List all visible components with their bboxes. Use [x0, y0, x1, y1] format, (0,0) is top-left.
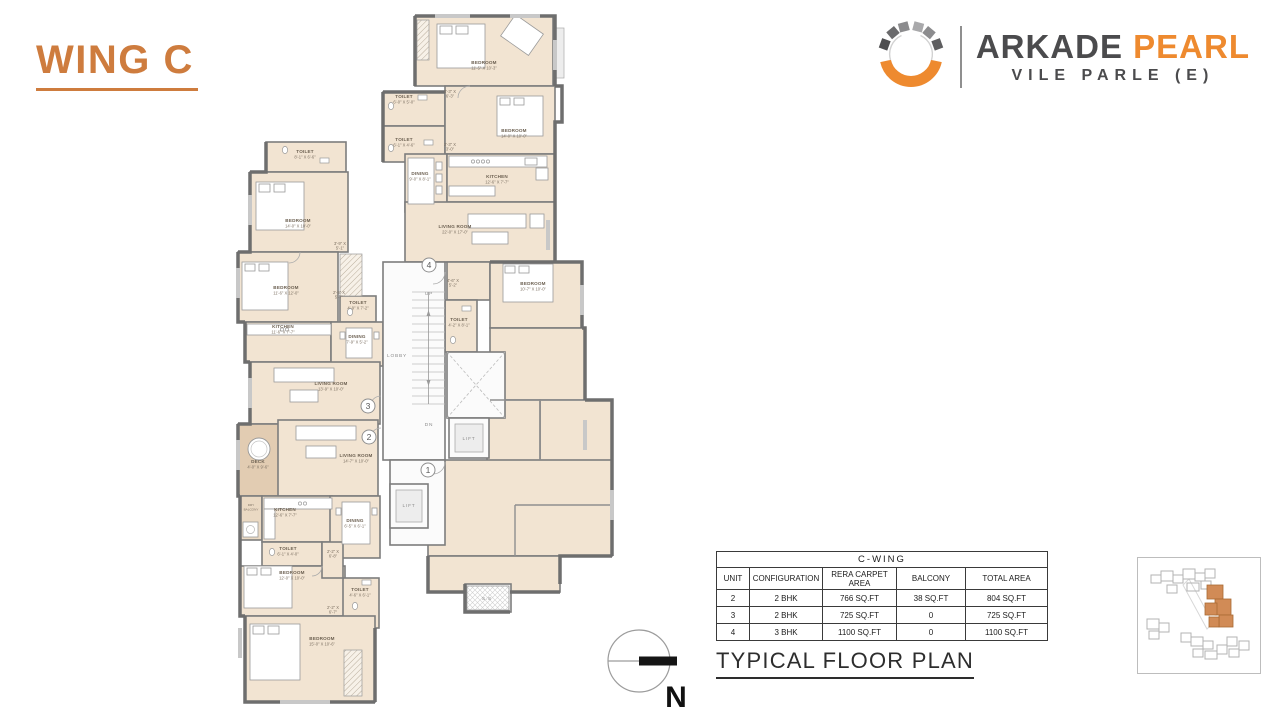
room-label: BEDROOM14'-0" X 10'-0" — [285, 218, 311, 228]
room-label: TOILET4'-2" X 8'-1" — [448, 317, 470, 327]
unit-marker: 2 — [362, 430, 376, 444]
room-label: LIVING ROOM14'-7" X 10'-0" — [339, 453, 372, 463]
room-label: BEDROOM15'-0" X 10'-6" — [309, 636, 335, 646]
room-label: TOILET6'-0" X 5'-0" — [393, 94, 415, 104]
table-row: 43 BHK 1100 SQ.FT0 1100 SQ.FT — [717, 624, 1048, 641]
svg-text:1: 1 — [426, 465, 431, 475]
room-label: KITCHEN12'-6" X 7'-7" — [273, 507, 297, 517]
svg-text:2: 2 — [367, 432, 372, 442]
col-header: TOTAL AREA — [966, 568, 1048, 590]
room-label: TOILET6'-1" X 4'-0" — [277, 546, 299, 556]
core-label: DN — [425, 422, 434, 428]
col-header: UNIT — [717, 568, 750, 590]
core-label: LIFT — [402, 503, 415, 509]
unit-marker: 4 — [422, 258, 436, 272]
room — [540, 400, 612, 462]
unit-marker: 1 — [421, 463, 435, 477]
wardrobe — [417, 20, 429, 60]
room-label: TOILET4'-9" X 7'-2" — [347, 300, 369, 310]
north-compass: N — [608, 630, 687, 714]
col-header: CONFIGURATION — [750, 568, 823, 590]
key-plan — [1137, 557, 1261, 674]
room-label: TOILET6'-1" X 4'-6" — [393, 137, 415, 147]
room-label: KITCHEN11'-6" X 7'-7" — [271, 324, 295, 334]
room-label: BEDROOM11'-5" X 10'-3" — [471, 60, 497, 70]
col-header: RERA CARPET AREA — [823, 568, 897, 590]
svg-text:4: 4 — [427, 260, 432, 270]
room-label: BEDROOM14'-0" X 10'-0" — [501, 128, 527, 138]
cwing-area-table: C-WING UNIT CONFIGURATION RERA CARPET AR… — [716, 551, 1048, 641]
room-label: BEDROOM10'-7" X 10'-0" — [520, 281, 546, 291]
wardrobe — [344, 650, 362, 696]
floor-plan: BEDROOM11'-5" X 10'-3"3'-3" X6'-3"TOILET… — [0, 0, 1280, 720]
room-label: LIVING ROOM13'-9" X 10'-0" — [314, 381, 347, 391]
table-row: 32 BHK 725 SQ.FT0 725 SQ.FT — [717, 607, 1048, 624]
room-label: KITCHEN12'-6" X 7'-7" — [485, 174, 509, 184]
north-label: N — [665, 681, 687, 714]
core-label: LOBBY — [387, 353, 407, 359]
col-header: BALCONY — [897, 568, 966, 590]
sheet-caption: TYPICAL FLOOR PLAN — [716, 648, 974, 679]
room-label: TOILET4'-6" X 6'-1" — [349, 587, 371, 597]
unit-marker: 3 — [361, 399, 375, 413]
rooms-layer — [238, 16, 612, 702]
core-label: S.S — [482, 596, 492, 602]
core-label: LIFT — [462, 436, 475, 442]
room-label: DINING6'-5" X 6'-1" — [344, 518, 366, 528]
room-label: BEDROOM11'-6" X 12'-0" — [273, 285, 299, 295]
room-label: DINING7'-9" X 5'-2" — [346, 334, 368, 344]
core-area — [447, 352, 505, 418]
room-label: BEDROOM12'-0" X 10'-0" — [279, 570, 305, 580]
floor-plan-sheet: WING C ARKADE PEARL VILE PARLE (E) — [0, 0, 1280, 720]
room — [428, 460, 612, 556]
washing-machine — [243, 522, 258, 537]
key-plan-map — [1137, 557, 1261, 674]
table-header-row: UNIT CONFIGURATION RERA CARPET AREA BALC… — [717, 568, 1048, 590]
room-label: TOILET8'-1" X 6'-6" — [294, 149, 316, 159]
room-label: DINING9'-0" X 8'-1" — [409, 171, 431, 181]
svg-text:3: 3 — [366, 401, 371, 411]
core-label: UP — [425, 291, 433, 297]
table-row: 22 BHK 766 SQ.FT38 SQ.FT 804 SQ.FT — [717, 590, 1048, 607]
room-label: LIVING ROOM22'-0" X 17'-0" — [438, 224, 471, 234]
table-title: C-WING — [717, 552, 1048, 568]
room — [322, 542, 343, 578]
